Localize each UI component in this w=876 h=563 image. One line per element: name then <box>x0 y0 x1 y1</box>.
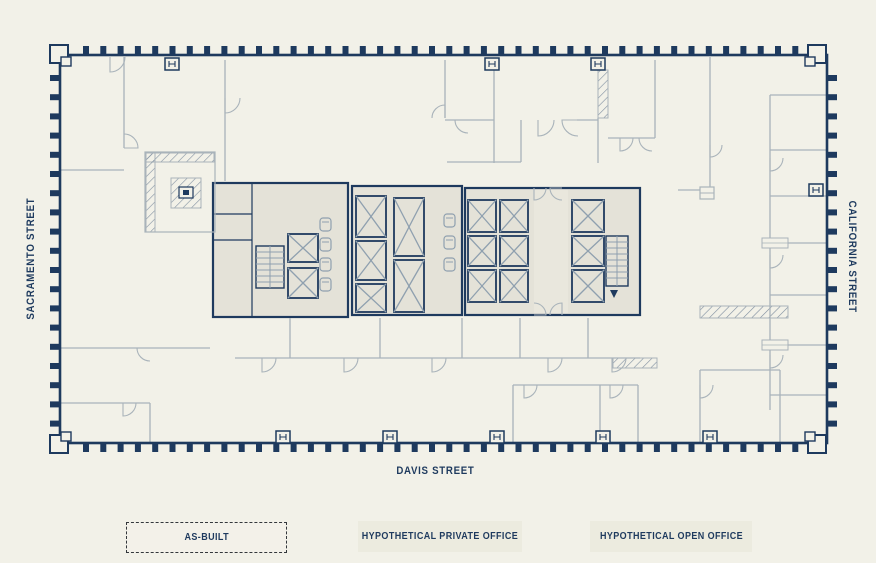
elevator-shaft <box>500 270 528 302</box>
as-built-button-label: AS-BUILT <box>184 532 229 543</box>
hypothetical-open-office-button[interactable]: HYPOTHETICAL OPEN OFFICE <box>590 521 752 552</box>
toilet-fixture <box>320 218 331 231</box>
street-label-sacramento: SACRAMENTO STREET <box>25 184 37 334</box>
street-label-california: CALIFORNIA STREET <box>846 182 858 332</box>
elevator-shaft <box>468 236 496 266</box>
street-label-text: CALIFORNIA STREET <box>846 201 858 313</box>
toilet-fixture <box>320 238 331 251</box>
hose-valve-symbol <box>591 58 605 70</box>
floor-plan-drawing <box>0 0 876 563</box>
elevator-shaft <box>572 236 604 266</box>
hose-valve-symbol <box>485 58 499 70</box>
hose-valve-symbol <box>276 431 290 443</box>
elevator-shaft <box>468 270 496 302</box>
elevator-shaft <box>572 270 604 302</box>
toilet-fixture <box>320 278 331 291</box>
toilet-fixture <box>444 258 455 271</box>
elevator-shaft <box>468 200 496 232</box>
elevator-shaft <box>394 260 424 312</box>
elevator-shaft <box>356 241 386 280</box>
elevator-shaft <box>394 198 424 256</box>
hose-valve-symbol <box>383 431 397 443</box>
street-label-davis: DAVIS STREET <box>335 465 535 477</box>
floor-plan-page: SACRAMENTO STREET CALIFORNIA STREET DAVI… <box>0 0 876 563</box>
elevator-shaft <box>572 200 604 232</box>
toilet-fixture <box>444 236 455 249</box>
hose-valve-symbol <box>490 431 504 443</box>
open-office-button-label: HYPOTHETICAL OPEN OFFICE <box>599 531 742 542</box>
elevator-shaft <box>356 196 386 237</box>
hose-valve-symbol <box>596 431 610 443</box>
elevator-shaft <box>288 234 318 262</box>
private-office-button-label: HYPOTHETICAL PRIVATE OFFICE <box>362 531 518 542</box>
street-label-text: DAVIS STREET <box>396 465 474 477</box>
hose-valve-symbol <box>703 431 717 443</box>
hypothetical-private-office-button[interactable]: HYPOTHETICAL PRIVATE OFFICE <box>358 521 522 552</box>
stair <box>256 246 284 288</box>
elevator-shaft <box>356 284 386 312</box>
elevator-shaft <box>500 200 528 232</box>
street-label-text: SACRAMENTO STREET <box>25 198 37 320</box>
as-built-button[interactable]: AS-BUILT <box>126 522 287 553</box>
toilet-fixture <box>320 258 331 271</box>
hose-valve-symbol <box>165 58 179 70</box>
toilet-fixture <box>444 214 455 227</box>
elevator-shaft <box>500 236 528 266</box>
elevator-shaft <box>288 268 318 298</box>
hose-valve-symbol <box>809 184 823 196</box>
stair <box>606 236 628 286</box>
